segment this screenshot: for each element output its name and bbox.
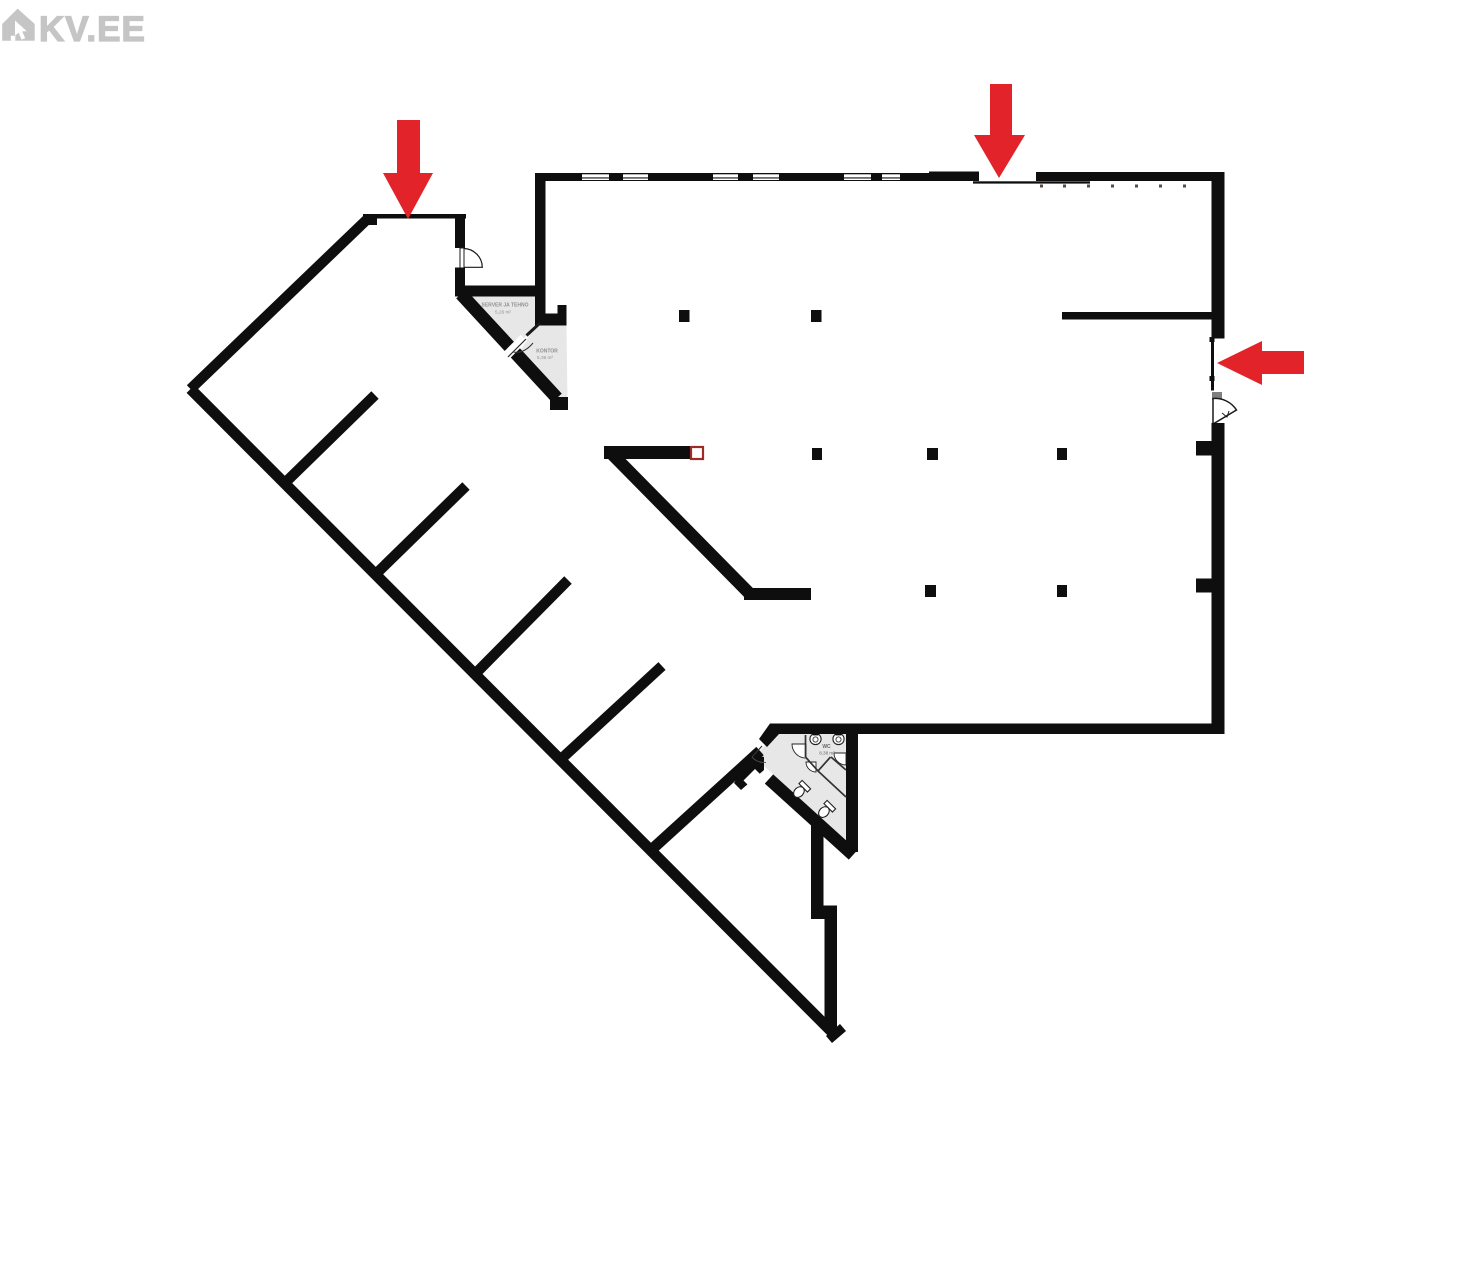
svg-text:SERVER JA TEHNO: SERVER JA TEHNO <box>482 303 529 309</box>
svg-text:KONTOR: KONTOR <box>536 349 558 355</box>
svg-text:5,26 m²: 5,26 m² <box>495 310 511 315</box>
svg-text:8,38 m²: 8,38 m² <box>819 751 835 756</box>
svg-text:5,36 m²: 5,36 m² <box>537 355 553 360</box>
svg-text:WC: WC <box>822 744 831 750</box>
svg-text:KV.EE: KV.EE <box>39 10 146 49</box>
